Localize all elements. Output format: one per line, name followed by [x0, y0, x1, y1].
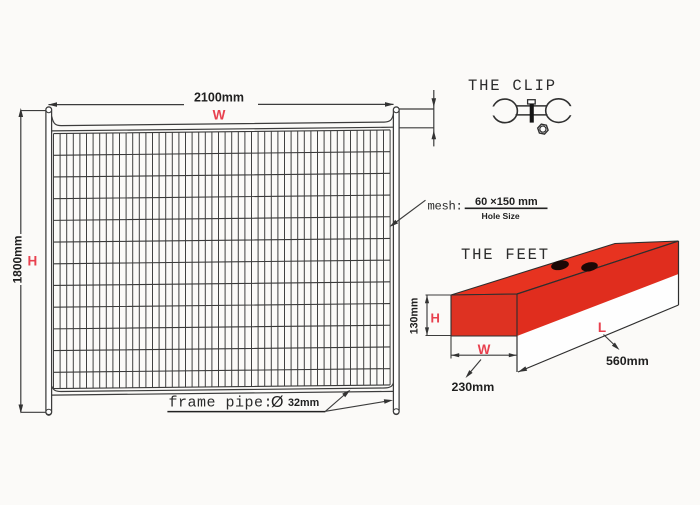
- svg-text:W: W: [213, 108, 226, 123]
- svg-text:1800mm: 1800mm: [11, 235, 25, 283]
- svg-text:H: H: [28, 254, 38, 269]
- svg-text:560mm: 560mm: [606, 354, 649, 368]
- svg-text:THE FEET: THE FEET: [461, 246, 550, 264]
- svg-text:60 ×150 mm: 60 ×150 mm: [475, 196, 538, 208]
- svg-text:32mm: 32mm: [288, 397, 319, 409]
- svg-text:130mm: 130mm: [409, 298, 421, 335]
- svg-text:Ø: Ø: [271, 394, 283, 411]
- svg-text:THE CLIP: THE CLIP: [468, 77, 557, 95]
- svg-text:L: L: [598, 320, 606, 335]
- svg-text:2100mm: 2100mm: [194, 91, 244, 105]
- svg-text:mesh:: mesh:: [428, 199, 463, 213]
- svg-text:H: H: [431, 311, 440, 326]
- svg-text:frame pipe:: frame pipe:: [169, 395, 274, 412]
- svg-text:Hole Size: Hole Size: [482, 211, 520, 221]
- svg-text:230mm: 230mm: [452, 380, 495, 394]
- svg-text:W: W: [478, 342, 491, 357]
